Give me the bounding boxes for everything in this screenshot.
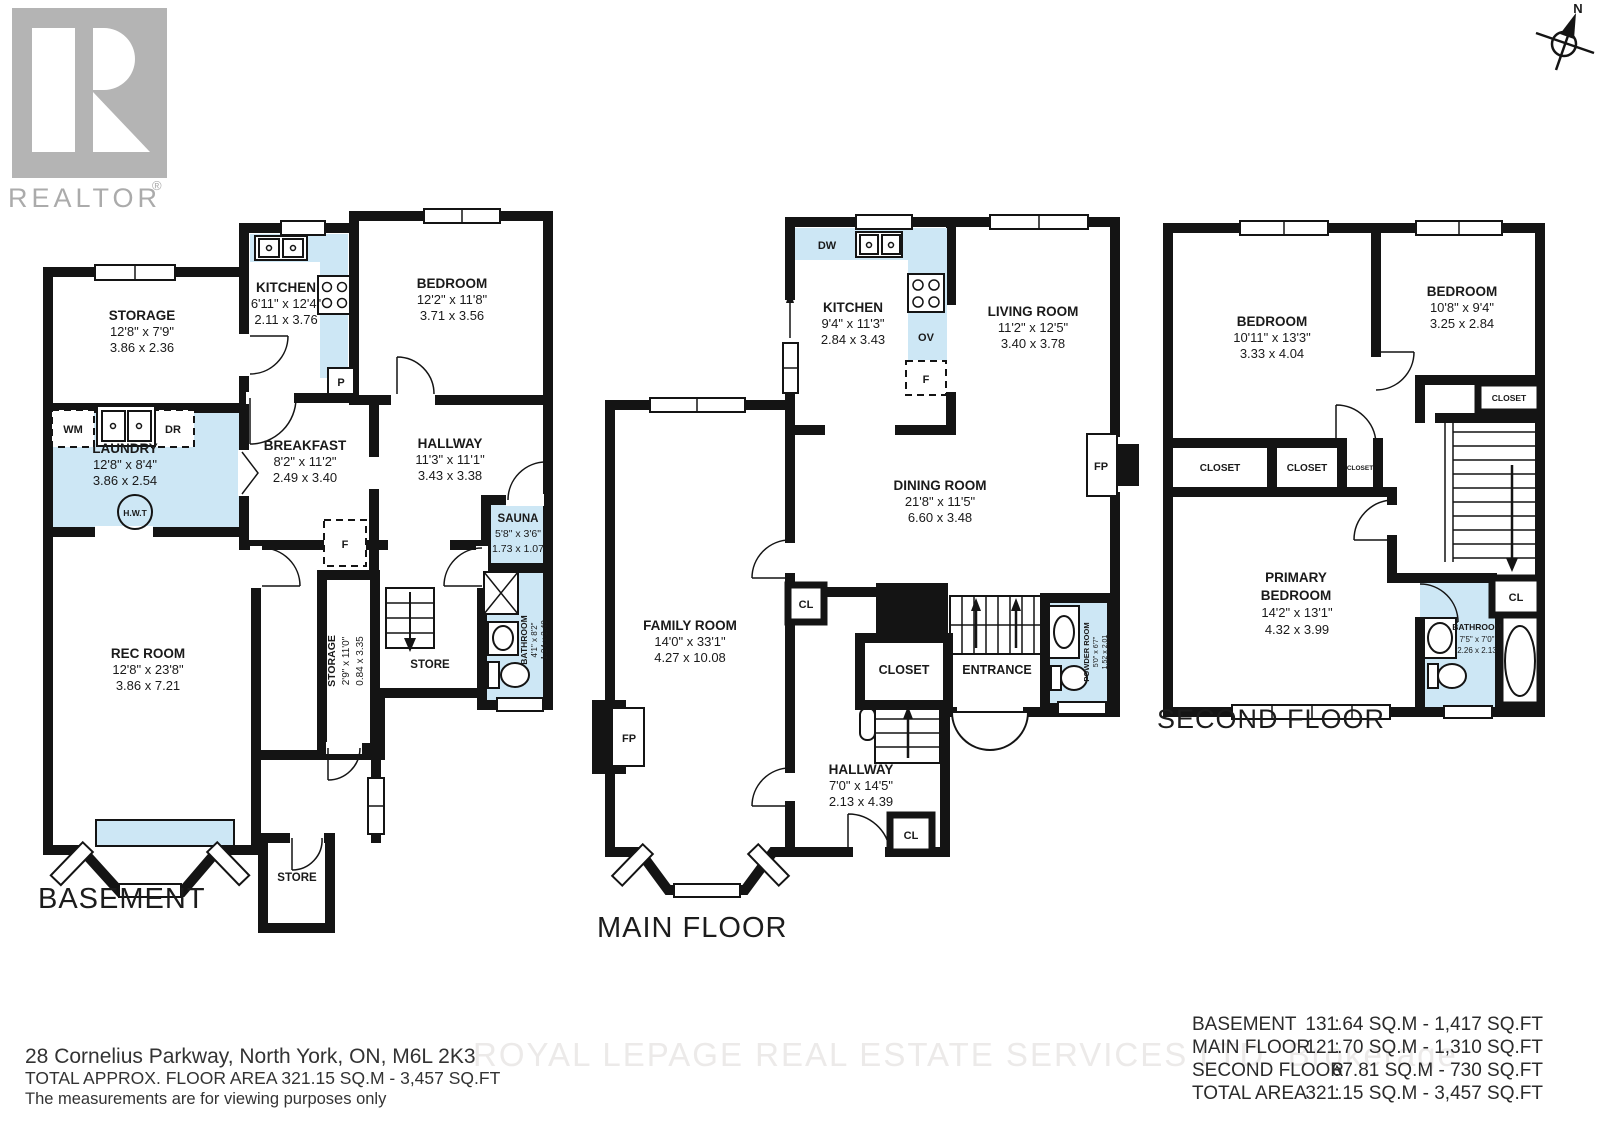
svg-text:2.13 x 4.39: 2.13 x 4.39 xyxy=(829,794,893,809)
front-door-swing xyxy=(952,712,1028,750)
svg-text:HALLWAY: HALLWAY xyxy=(829,762,894,777)
svg-text:7'5" x 7'0": 7'5" x 7'0" xyxy=(1460,635,1495,644)
dryer-label: DR xyxy=(165,424,181,436)
registered-mark: ® xyxy=(152,178,162,193)
second-sink-icon xyxy=(1424,618,1456,658)
second-floor-title: SECOND FLOOR xyxy=(1157,704,1385,734)
svg-text:8'2" x 11'2": 8'2" x 11'2" xyxy=(273,454,336,469)
svg-text:12'8" x 7'9": 12'8" x 7'9" xyxy=(110,324,174,339)
svg-text:LAUNDRY: LAUNDRY xyxy=(92,441,158,456)
svg-text:BEDROOM: BEDROOM xyxy=(1237,314,1308,329)
svg-text:BEDROOM: BEDROOM xyxy=(1427,284,1498,299)
basement-plan: P WM DR H.W.T F xyxy=(38,209,549,928)
main-stove-icon xyxy=(908,274,944,312)
svg-text:3.86 x 2.54: 3.86 x 2.54 xyxy=(93,473,157,488)
powder-sink-icon xyxy=(1049,606,1079,658)
storage-corridor-label: STORAGE 2'9" x 11'0" 0.84 x 3.35 xyxy=(326,635,366,687)
svg-text:1.24 x 2.49: 1.24 x 2.49 xyxy=(540,620,549,660)
bathtub-icon xyxy=(1505,626,1535,696)
svg-text:DINING ROOM: DINING ROOM xyxy=(894,478,987,493)
svg-text:3.25 x 2.84: 3.25 x 2.84 xyxy=(1430,316,1494,331)
svg-text:131.64 SQ.M - 1,417 SQ.FT: 131.64 SQ.M - 1,417 SQ.FT xyxy=(1305,1014,1543,1035)
basement-toilet-icon xyxy=(488,662,529,688)
basement-stove-icon xyxy=(318,276,350,314)
svg-text:14'2" x 13'1": 14'2" x 13'1" xyxy=(1261,605,1333,620)
main-kitchen-sink-icon xyxy=(856,232,902,257)
floor-plan-canvas: REALTOR ® N xyxy=(0,0,1600,1131)
svg-text:11'2" x 12'5": 11'2" x 12'5" xyxy=(998,320,1069,335)
svg-text:SAUNA: SAUNA xyxy=(498,513,539,525)
svg-text:HALLWAY: HALLWAY xyxy=(418,436,483,451)
svg-text:321.15 SQ.M - 3,457 SQ.FT: 321.15 SQ.M - 3,457 SQ.FT xyxy=(1305,1083,1543,1104)
svg-text:121.70 SQ.M - 1,310 SQ.FT: 121.70 SQ.M - 1,310 SQ.FT xyxy=(1305,1037,1543,1058)
table-row: MAIN FLOOR : 121.70 SQ.M - 1,310 SQ.FT xyxy=(1192,1037,1543,1058)
breakfast-label: BREAKFAST 8'2" x 11'2" 2.49 x 3.40 xyxy=(264,438,347,485)
svg-text:1.73 x 1.07: 1.73 x 1.07 xyxy=(492,543,544,555)
svg-text:10'8" x 9'4": 10'8" x 9'4" xyxy=(1430,300,1494,315)
second-floor-plan: BEDROOM 10'11" x 13'3" 3.33 x 4.04 BEDRO… xyxy=(1157,221,1540,734)
svg-text:3.43 x 3.38: 3.43 x 3.38 xyxy=(418,468,482,483)
svg-text:BEDROOM: BEDROOM xyxy=(1261,588,1332,603)
realtor-logo-text: REALTOR xyxy=(8,183,161,213)
second-bathroom-label: BATHROOM 7'5" x 7'0" 2.26 x 2.13 xyxy=(1452,622,1501,655)
storage-room-label: STORAGE 12'8" x 7'9" 3.86 x 2.36 xyxy=(109,308,176,355)
chimney-box xyxy=(876,583,948,638)
svg-text:3.86 x 7.21: 3.86 x 7.21 xyxy=(116,678,180,693)
washer-label: WM xyxy=(63,424,83,436)
svg-text:4.27 x 10.08: 4.27 x 10.08 xyxy=(654,650,726,665)
closet-3-label: CLOSET xyxy=(1347,465,1373,472)
svg-text:6.60 x 3.48: 6.60 x 3.48 xyxy=(908,510,972,525)
bedroom-left-label: BEDROOM 10'11" x 13'3" 3.33 x 4.04 xyxy=(1233,314,1311,361)
store-bottom-label: STORE xyxy=(277,872,317,884)
basement-sink-icon xyxy=(488,622,518,655)
svg-text:4.32 x 3.99: 4.32 x 3.99 xyxy=(1265,622,1329,637)
cl-dining-label: CL xyxy=(799,599,814,611)
closet-1-label: CLOSET xyxy=(1200,463,1241,474)
basement-title: BASEMENT xyxy=(38,883,206,915)
svg-text:2.49 x 3.40: 2.49 x 3.40 xyxy=(273,470,337,485)
svg-text:POWDER ROOM: POWDER ROOM xyxy=(1082,622,1091,681)
table-row: BASEMENT : 131.64 SQ.M - 1,417 SQ.FT xyxy=(1192,1014,1543,1035)
compass-north-label: N xyxy=(1573,1,1582,16)
main-floor-title: MAIN FLOOR xyxy=(597,912,787,944)
svg-text:12'8" x 8'4": 12'8" x 8'4" xyxy=(93,457,157,472)
svg-text:2.11 x 3.76: 2.11 x 3.76 xyxy=(254,312,317,327)
svg-text:3.40 x 3.78: 3.40 x 3.78 xyxy=(1001,336,1065,351)
store-mid-label: STORE xyxy=(410,659,450,671)
svg-text:LIVING ROOM: LIVING ROOM xyxy=(988,304,1079,319)
svg-text:FP: FP xyxy=(622,733,636,745)
svg-text:21'8" x 11'5": 21'8" x 11'5" xyxy=(905,494,976,509)
table-row: SECOND FLOOR : 67.81 SQ.M - 730 SQ.FT xyxy=(1192,1060,1543,1081)
svg-text:2'9" x 11'0": 2'9" x 11'0" xyxy=(341,636,352,685)
second-toilet-icon xyxy=(1428,664,1466,688)
entrance-label: ENTRANCE xyxy=(962,663,1031,677)
rec-room-label: REC ROOM 12'8" x 23'8" 3.86 x 7.21 xyxy=(111,646,185,693)
basement-bedroom-label: BEDROOM 12'2" x 11'8" 3.71 x 3.56 xyxy=(417,276,488,323)
svg-text:BATHROOM: BATHROOM xyxy=(519,615,529,664)
svg-text:3.33 x 4.04: 3.33 x 4.04 xyxy=(1240,346,1304,361)
oven-label: OV xyxy=(918,332,935,344)
cl-hall-label: CL xyxy=(904,830,919,842)
svg-text:STORAGE: STORAGE xyxy=(109,308,176,323)
svg-text:BREAKFAST: BREAKFAST xyxy=(264,438,347,453)
svg-text:1.52 x 2.01: 1.52 x 2.01 xyxy=(1102,635,1109,670)
hallway-stairs xyxy=(860,705,940,763)
fireplace-right: FP xyxy=(1087,434,1139,496)
pantry-label: P xyxy=(337,377,344,389)
basement-hallway-label: HALLWAY 11'3" x 11'1" 3.43 x 3.38 xyxy=(415,436,485,483)
svg-text:2.84 x 3.43: 2.84 x 3.43 xyxy=(821,332,885,347)
total-area-line: TOTAL APPROX. FLOOR AREA 321.15 SQ.M - 3… xyxy=(25,1068,501,1088)
compass-icon: N xyxy=(1536,1,1594,70)
svg-text:BASEMENT: BASEMENT xyxy=(1192,1014,1297,1035)
svg-text:MAIN FLOOR: MAIN FLOOR xyxy=(1192,1037,1310,1058)
svg-text:BATHROOM: BATHROOM xyxy=(1452,622,1501,632)
svg-text:5'8" x 3'6": 5'8" x 3'6" xyxy=(495,528,541,540)
svg-text:KITCHEN: KITCHEN xyxy=(823,300,883,315)
svg-text:PRIMARY: PRIMARY xyxy=(1265,570,1327,585)
svg-text:0.84 x 3.35: 0.84 x 3.35 xyxy=(355,636,366,686)
laundry-label: LAUNDRY 12'8" x 8'4" 3.86 x 2.54 xyxy=(92,441,158,488)
svg-text:4'1" x 8'2": 4'1" x 8'2" xyxy=(530,622,539,657)
svg-text:KITCHEN: KITCHEN xyxy=(256,280,316,295)
svg-text:7'0" x 14'5": 7'0" x 14'5" xyxy=(829,778,893,793)
svg-text:2.26 x 2.13: 2.26 x 2.13 xyxy=(1457,646,1497,655)
svg-text:6'11" x 12'4": 6'11" x 12'4" xyxy=(251,296,322,311)
svg-text:9'4" x 11'3": 9'4" x 11'3" xyxy=(821,316,884,331)
family-room-label: FAMILY ROOM 14'0" x 33'1" 4.27 x 10.08 xyxy=(643,618,737,665)
disclaimer: The measurements are for viewing purpose… xyxy=(25,1090,387,1108)
svg-text:67.81 SQ.M - 730 SQ.FT: 67.81 SQ.M - 730 SQ.FT xyxy=(1332,1060,1544,1081)
svg-text:14'0" x 33'1": 14'0" x 33'1" xyxy=(654,634,726,649)
main-hallway-label: HALLWAY 7'0" x 14'5" 2.13 x 4.39 xyxy=(829,762,894,809)
basement-furnace-label: F xyxy=(342,539,349,551)
closet-bedroom-right-label: CLOSET xyxy=(1492,393,1527,403)
sauna-label: SAUNA 5'8" x 3'6" 1.73 x 1.07 xyxy=(492,513,544,555)
svg-text:REC ROOM: REC ROOM xyxy=(111,646,185,661)
svg-text:12'8" x 23'8": 12'8" x 23'8" xyxy=(112,662,184,677)
svg-text:12'2" x 11'8": 12'2" x 11'8" xyxy=(417,292,488,307)
svg-text:3.71 x 3.56: 3.71 x 3.56 xyxy=(420,308,484,323)
laundry-tub-icon xyxy=(97,406,155,446)
basement-shower-icon xyxy=(484,572,518,614)
main-furnace-label: F xyxy=(923,374,930,386)
main-kitchen-label: KITCHEN 9'4" x 11'3" 2.84 x 3.43 xyxy=(821,300,885,347)
bedroom-right-label: BEDROOM 10'8" x 9'4" 3.25 x 2.84 xyxy=(1427,284,1498,331)
basement-bathroom-label: BATHROOM 4'1" x 8'2" 1.24 x 2.49 xyxy=(519,615,549,664)
cl-landing-label: CL xyxy=(1509,592,1524,604)
main-floor-plan: DW OV F FP FP xyxy=(592,215,1139,944)
svg-text:TOTAL AREA: TOTAL AREA xyxy=(1192,1083,1307,1104)
basement-kitchen-label: KITCHEN 6'11" x 12'4" 2.11 x 3.76 xyxy=(251,280,322,327)
realtor-logo-icon: REALTOR ® xyxy=(8,8,167,213)
dishwasher-label: DW xyxy=(818,240,837,252)
svg-text:3.86 x 2.36: 3.86 x 2.36 xyxy=(110,340,174,355)
svg-text:11'3" x 11'1": 11'3" x 11'1" xyxy=(415,452,485,467)
svg-text:FAMILY ROOM: FAMILY ROOM xyxy=(643,618,737,633)
property-address: 28 Cornelius Parkway, North York, ON, M6… xyxy=(25,1045,476,1068)
main-closet-label: CLOSET xyxy=(879,663,930,677)
svg-text:FP: FP xyxy=(1094,461,1108,473)
svg-text:STORAGE: STORAGE xyxy=(326,635,338,687)
svg-text:5'0" x 6'7": 5'0" x 6'7" xyxy=(1093,636,1100,667)
closet-2-label: CLOSET xyxy=(1287,463,1328,474)
svg-text:10'11" x 13'3": 10'11" x 13'3" xyxy=(1233,330,1311,345)
svg-text:SECOND FLOOR: SECOND FLOOR xyxy=(1192,1060,1344,1081)
water-tank-label: H.W.T xyxy=(123,508,147,518)
fireplace-left: FP xyxy=(592,700,644,774)
svg-text:BEDROOM: BEDROOM xyxy=(417,276,488,291)
basement-kitchen-sink-icon xyxy=(255,236,307,260)
living-room-label: LIVING ROOM 11'2" x 12'5" 3.40 x 3.78 xyxy=(988,304,1079,351)
table-row: TOTAL AREA : 321.15 SQ.M - 3,457 SQ.FT xyxy=(1192,1083,1543,1104)
